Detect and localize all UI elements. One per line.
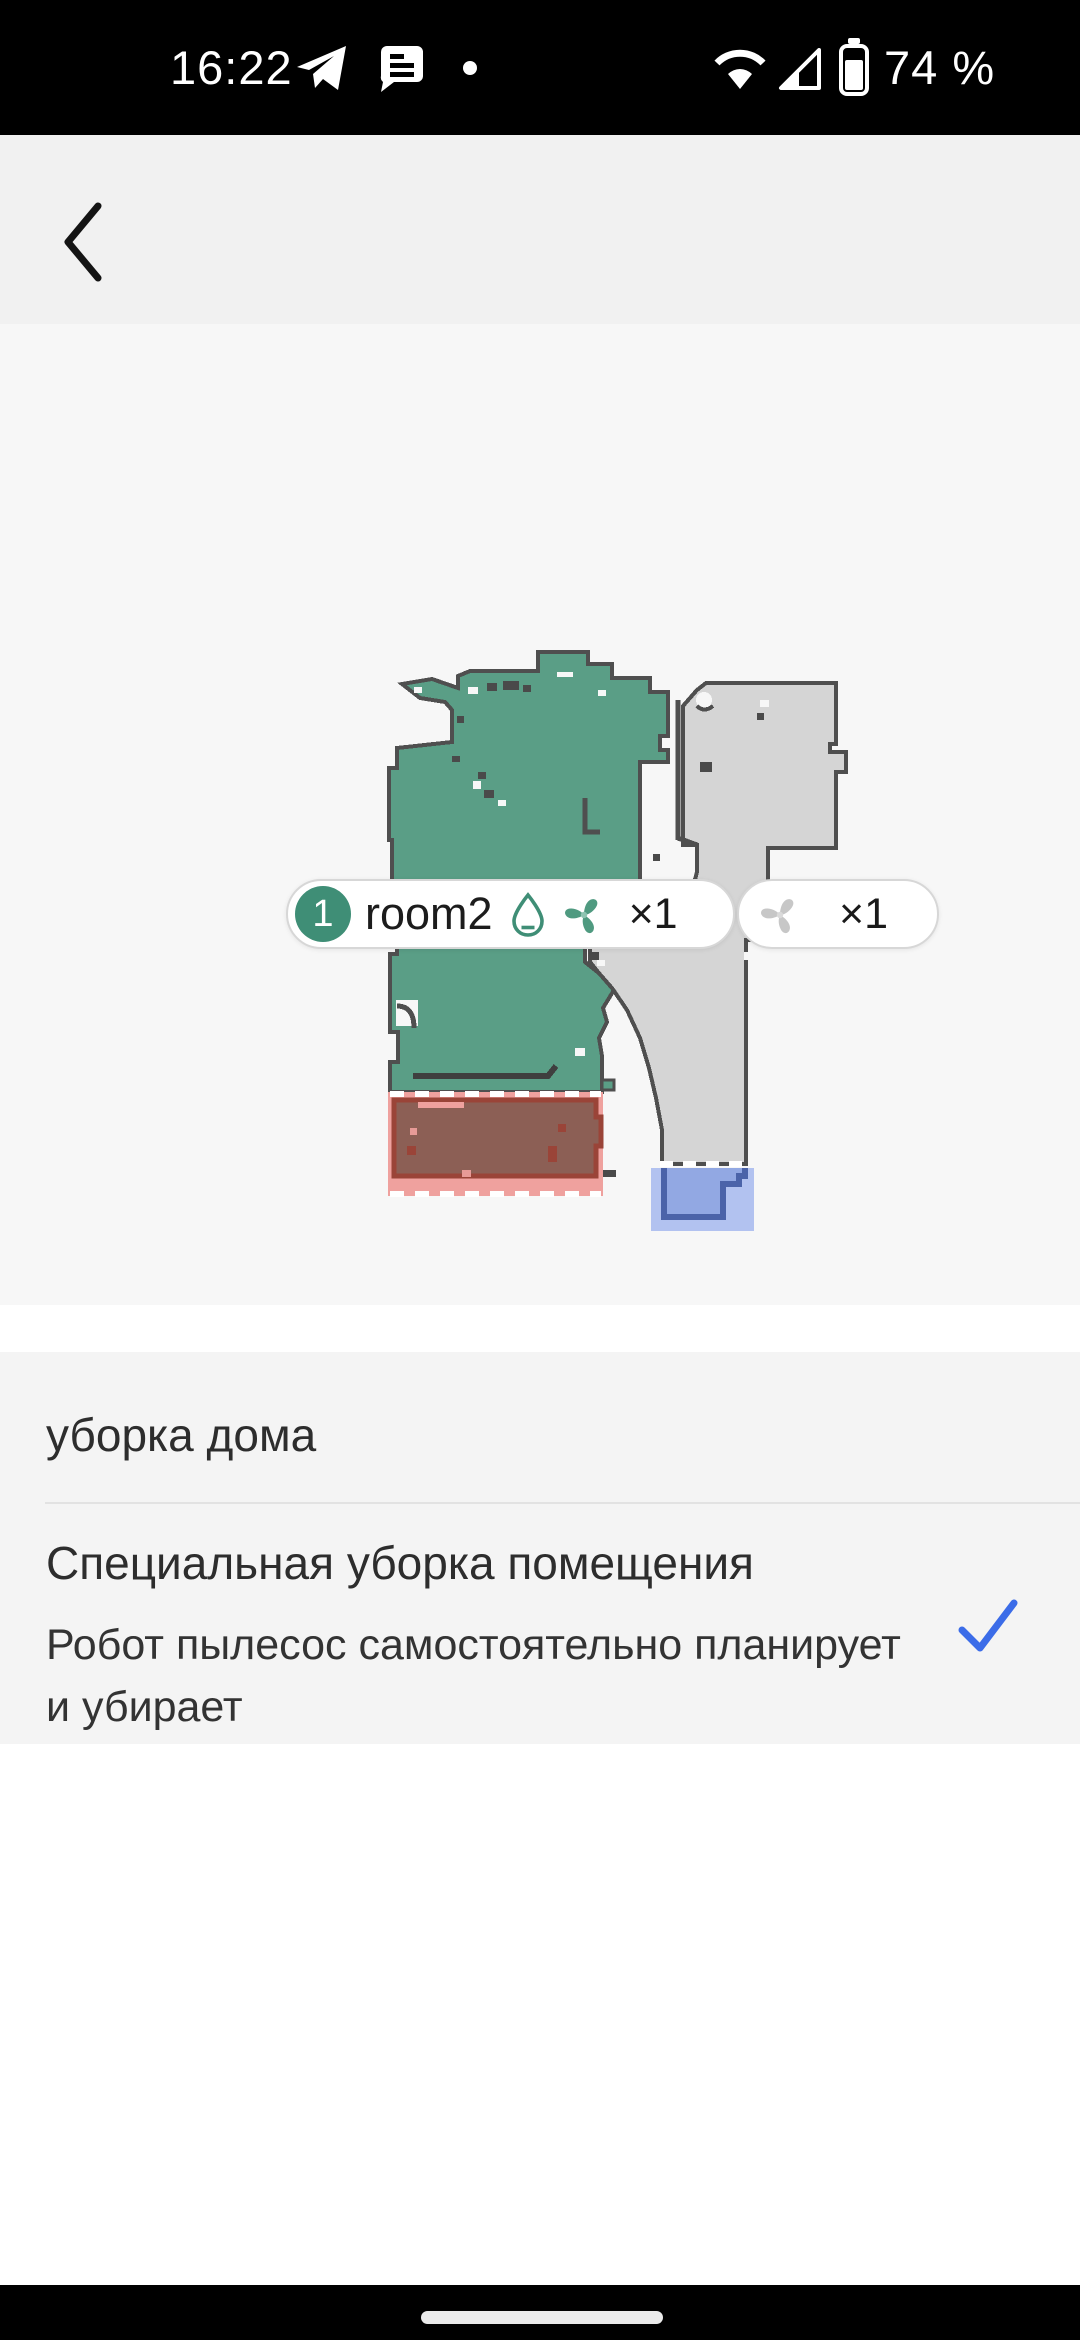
room-name: room2: [365, 888, 493, 940]
room-green[interactable]: [389, 652, 668, 1092]
option-home-cleaning[interactable]: уборка дома: [46, 1408, 316, 1462]
room-label-1[interactable]: 1 room2 ×1: [286, 879, 735, 949]
option-special-cleaning-title[interactable]: Специальная уборка помещения: [46, 1536, 754, 1590]
clean-count: ×1: [839, 890, 888, 939]
option-special-cleaning-subtitle: Робот пылесос самостоятельно планирует и…: [46, 1614, 926, 1738]
back-chevron-icon[interactable]: [58, 200, 106, 284]
battery-icon: [838, 38, 870, 96]
wifi-icon: [712, 46, 768, 92]
list-divider: [45, 1502, 1080, 1504]
gesture-nav-bar: [0, 2285, 1080, 2340]
clock: 16:22: [170, 40, 293, 95]
phone-screen: 16:22 74 % Пожалуйста, вы: [0, 0, 1080, 2340]
home-indicator[interactable]: [421, 2311, 663, 2324]
floor-map[interactable]: [0, 324, 1080, 1305]
sms-icon: [378, 44, 426, 92]
room-index-badge: 1: [295, 886, 351, 942]
battery-percent: 74 %: [884, 40, 995, 95]
selected-check-icon: [956, 1598, 1020, 1654]
app-bar: Пожалуйста, выбе…: [0, 135, 1080, 324]
notification-dot-icon: [463, 61, 477, 75]
clean-count: ×1: [629, 890, 678, 939]
cleaning-mode-list: уборка дома Специальная уборка помещения…: [0, 1352, 1080, 1744]
no-go-zone[interactable]: [388, 1092, 603, 1196]
status-bar: 16:22 74 %: [0, 0, 1080, 135]
fan-icon: [757, 891, 803, 937]
water-drop-icon: [505, 891, 551, 937]
map-canvas[interactable]: [0, 324, 1080, 1305]
telegram-icon: [296, 44, 348, 92]
dock-zone[interactable]: [651, 1164, 754, 1231]
fan-icon: [561, 891, 607, 937]
map-fleck: [602, 1080, 614, 1090]
cell-signal-icon: [778, 47, 822, 91]
room-label-2[interactable]: ×1: [737, 879, 939, 949]
